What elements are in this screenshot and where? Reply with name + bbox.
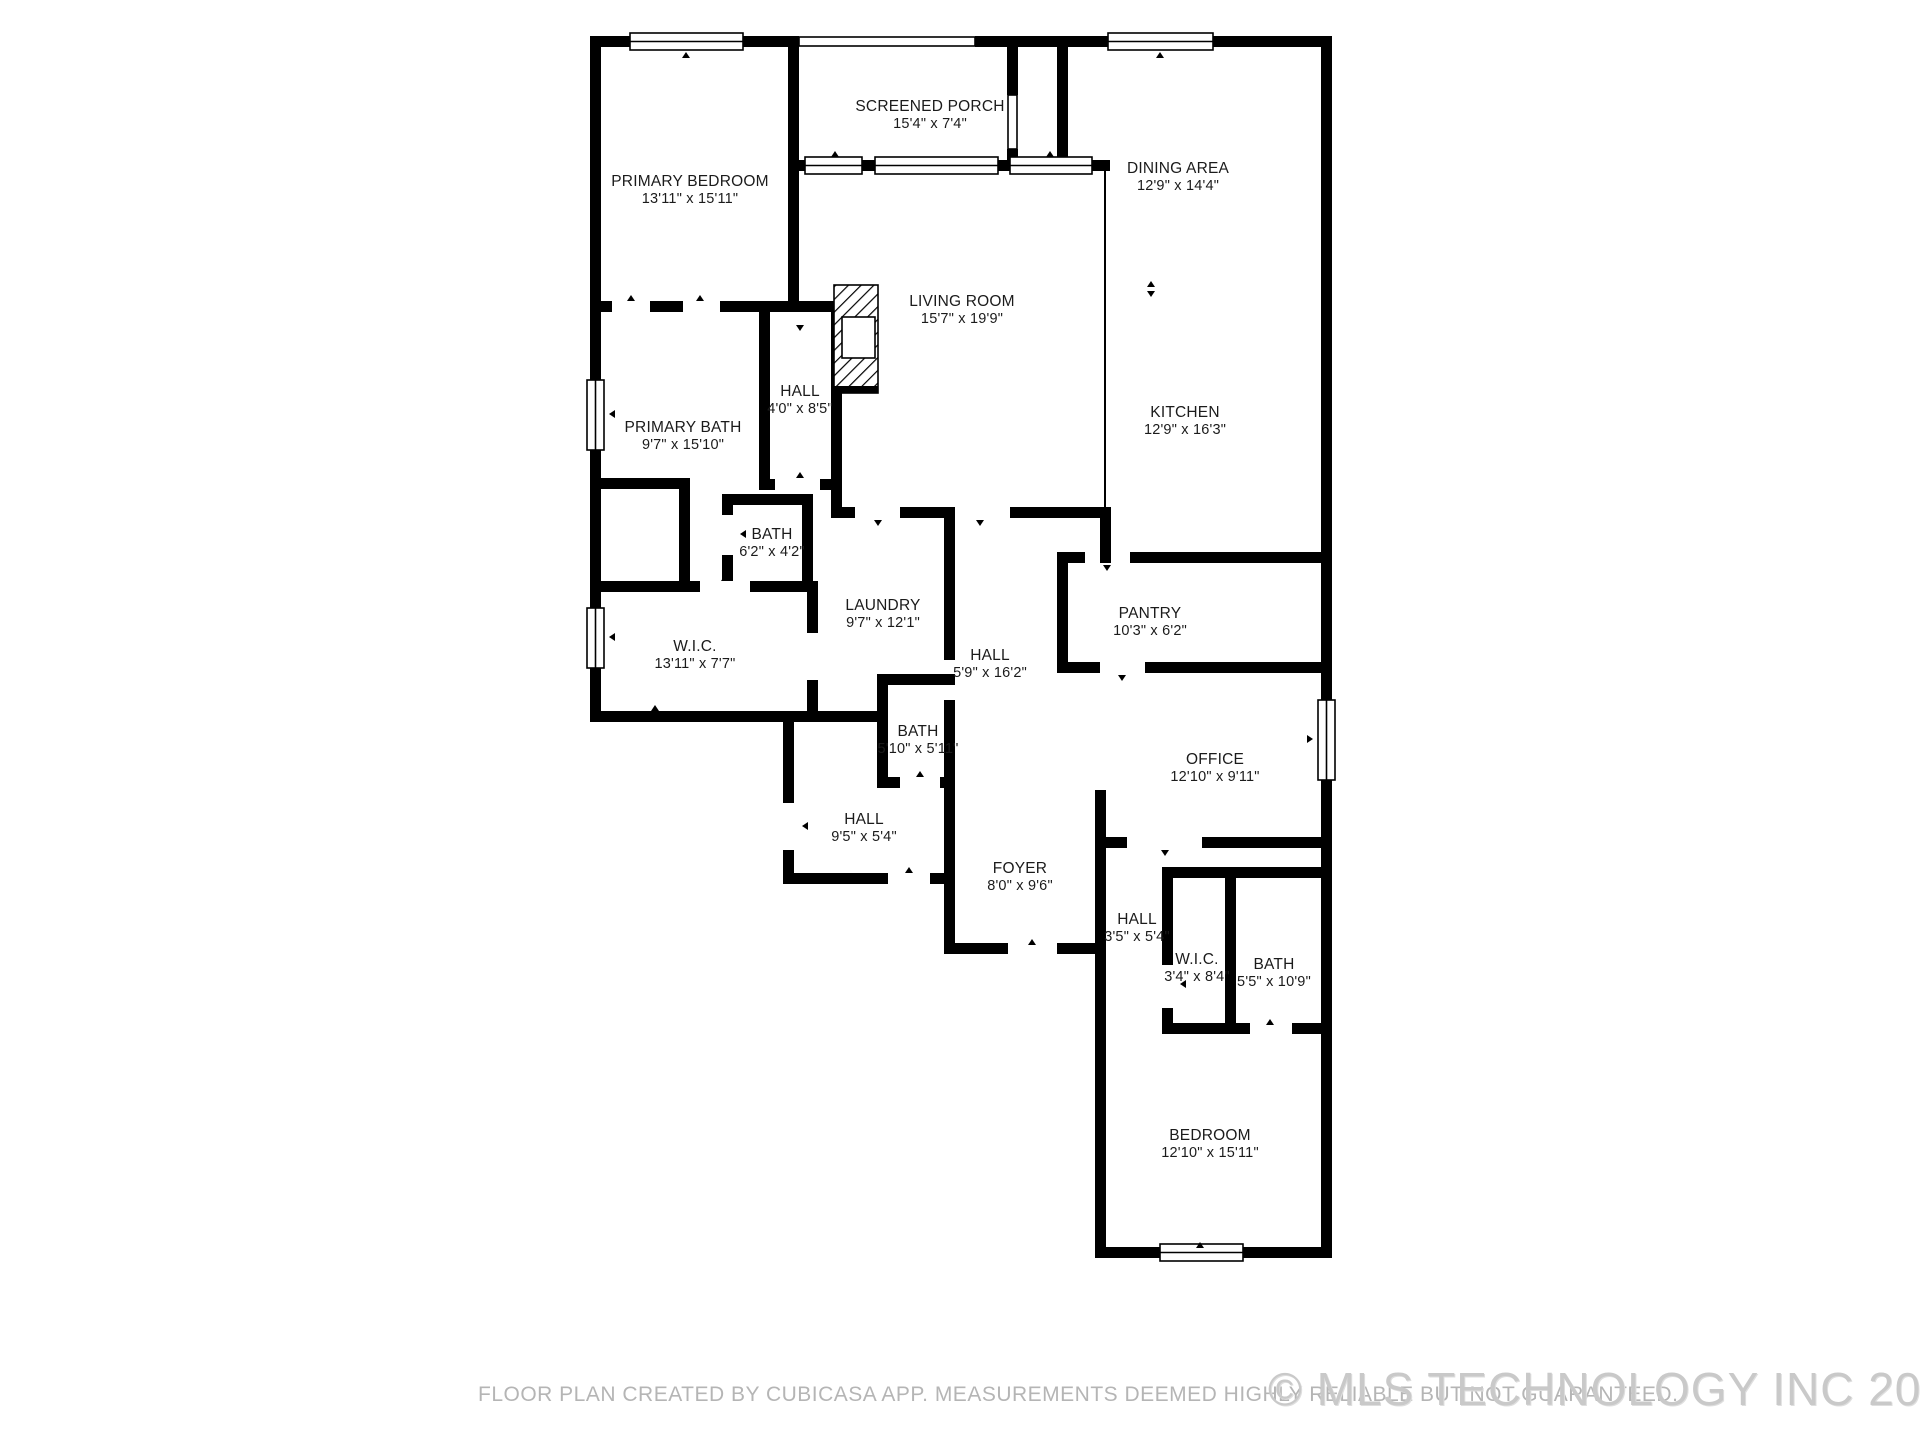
fireplace-icon [834, 285, 878, 393]
window-icon [1010, 157, 1092, 174]
screen-wall-icon [799, 37, 975, 46]
window-icon [587, 608, 604, 668]
window-icon [875, 157, 998, 174]
screen-wall-icon [1008, 95, 1017, 149]
windows [587, 33, 1335, 1261]
window-icon [1318, 700, 1335, 780]
floorplan-canvas: PRIMARY BEDROOM13'11" x 15'11"SCREENED P… [0, 0, 1920, 1440]
window-icon [805, 157, 862, 174]
door-ticks [609, 52, 1313, 1248]
window-icon [1108, 33, 1213, 50]
walls [590, 36, 1332, 1258]
floorplan-drawing [0, 0, 1920, 1440]
window-icon [587, 380, 604, 450]
watermark-text: © MLS TECHNOLOGY INC 2025 [1268, 1362, 1920, 1416]
window-icon [630, 33, 743, 50]
